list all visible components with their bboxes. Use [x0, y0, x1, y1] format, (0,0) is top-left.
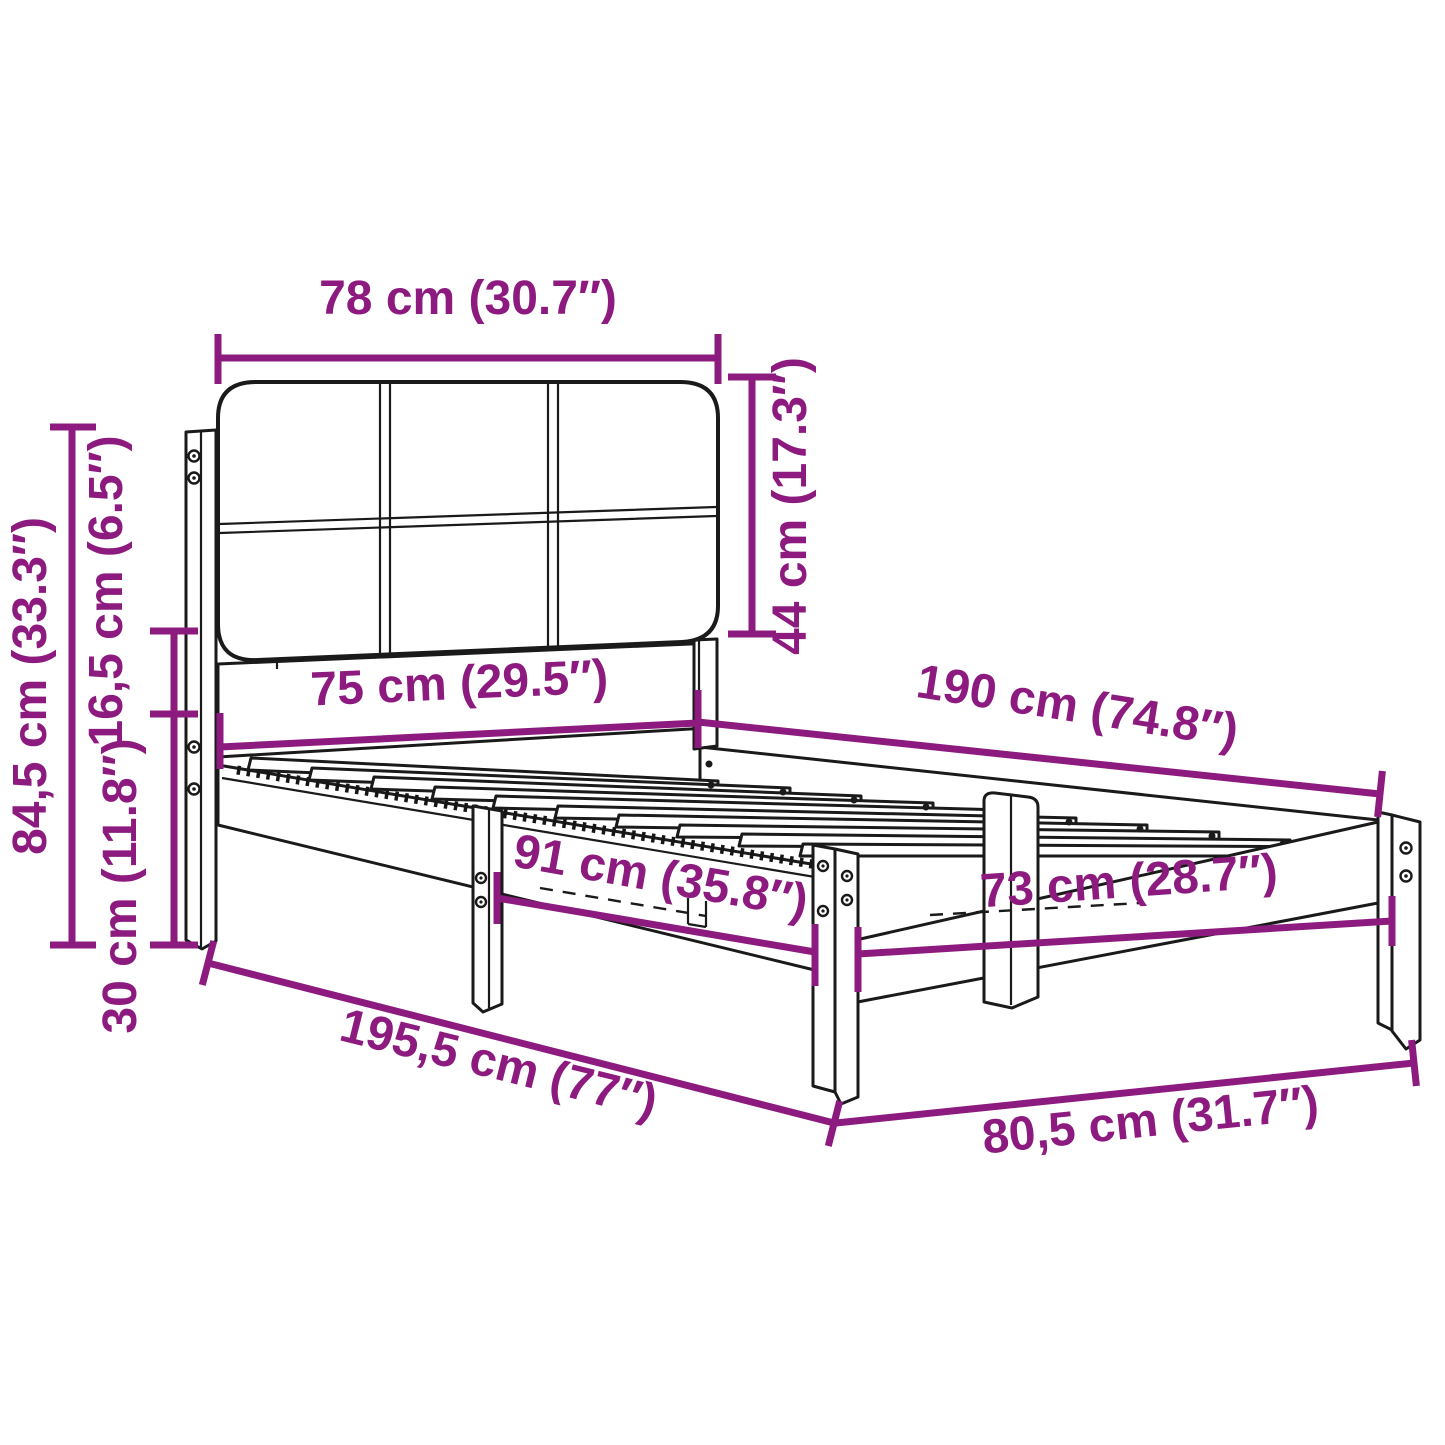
diagram-canvas: 78 cm (30.7″) 44 cm (17.3″) 84,5 cm (33.…: [0, 0, 1445, 1445]
bed-dimension-diagram: 78 cm (30.7″) 44 cm (17.3″) 84,5 cm (33.…: [0, 0, 1445, 1445]
dim-label-headboard-width: 78 cm (30.7″): [319, 272, 617, 325]
dim-line-headboard-width: [218, 334, 718, 384]
dim-label-frame-height: 30 cm (11.8″): [94, 738, 147, 1033]
foot-near-leg: [813, 845, 858, 1104]
headboard-cushion: [218, 382, 718, 660]
dim-label-overall-height: 84,5 cm (33.3″): [4, 517, 57, 855]
dim-label-mattress-length: 190 cm (74.8″): [913, 655, 1242, 758]
dim-label-headboard-offset: 16,5 cm (6.5″): [80, 435, 133, 746]
dim-label-headboard-height: 44 cm (17.3″): [764, 357, 817, 655]
foot-far-leg: [1378, 812, 1420, 1049]
headboard-left-post: [186, 430, 216, 949]
